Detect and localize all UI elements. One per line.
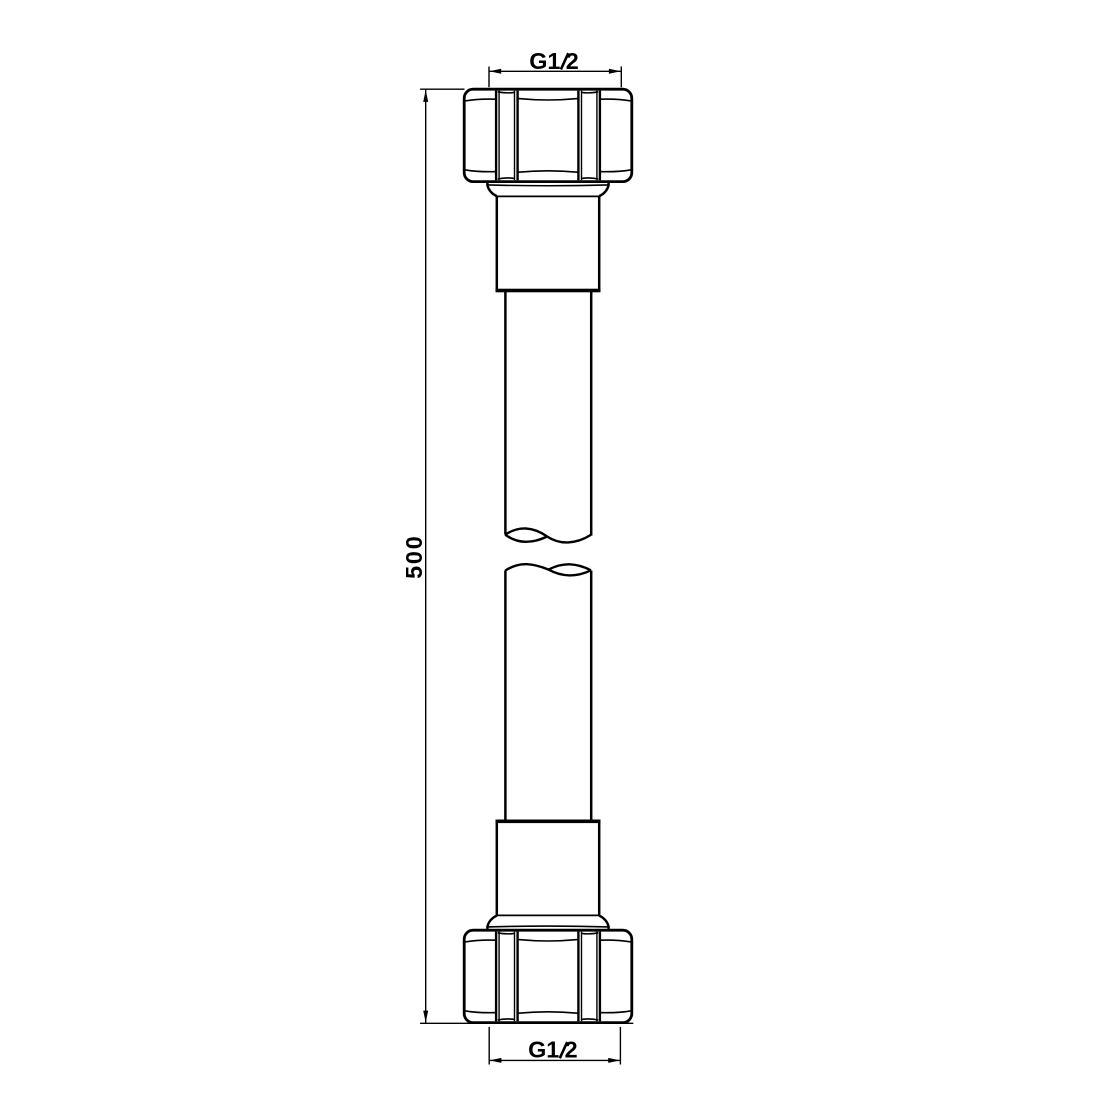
svg-text:2: 2 (565, 1037, 578, 1063)
svg-text:2: 2 (566, 48, 579, 74)
svg-text:G1: G1 (529, 48, 560, 74)
svg-text:500: 500 (401, 534, 427, 578)
svg-text:G1: G1 (528, 1037, 559, 1063)
